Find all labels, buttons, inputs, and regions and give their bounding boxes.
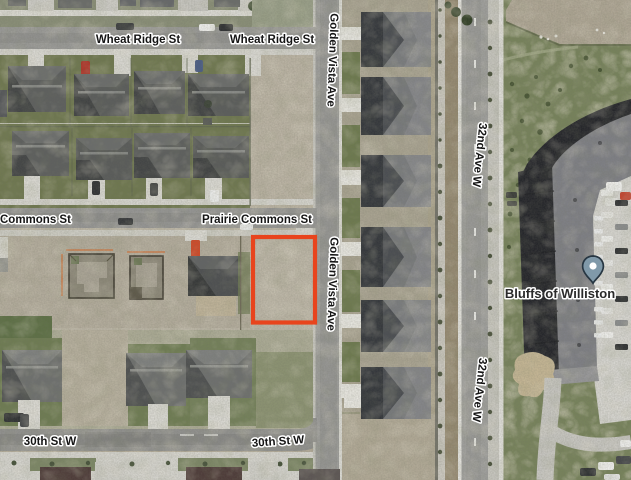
svg-text:30th St W: 30th St W: [24, 436, 77, 448]
svg-text:Wheat Ridge St: Wheat Ridge St: [230, 34, 315, 46]
svg-text:Commons St: Commons St: [0, 214, 71, 226]
svg-text:Bluffs of Williston: Bluffs of Williston: [505, 286, 615, 301]
svg-text:Wheat Ridge St: Wheat Ridge St: [96, 34, 181, 46]
svg-text:Prairie Commons St: Prairie Commons St: [202, 214, 312, 226]
